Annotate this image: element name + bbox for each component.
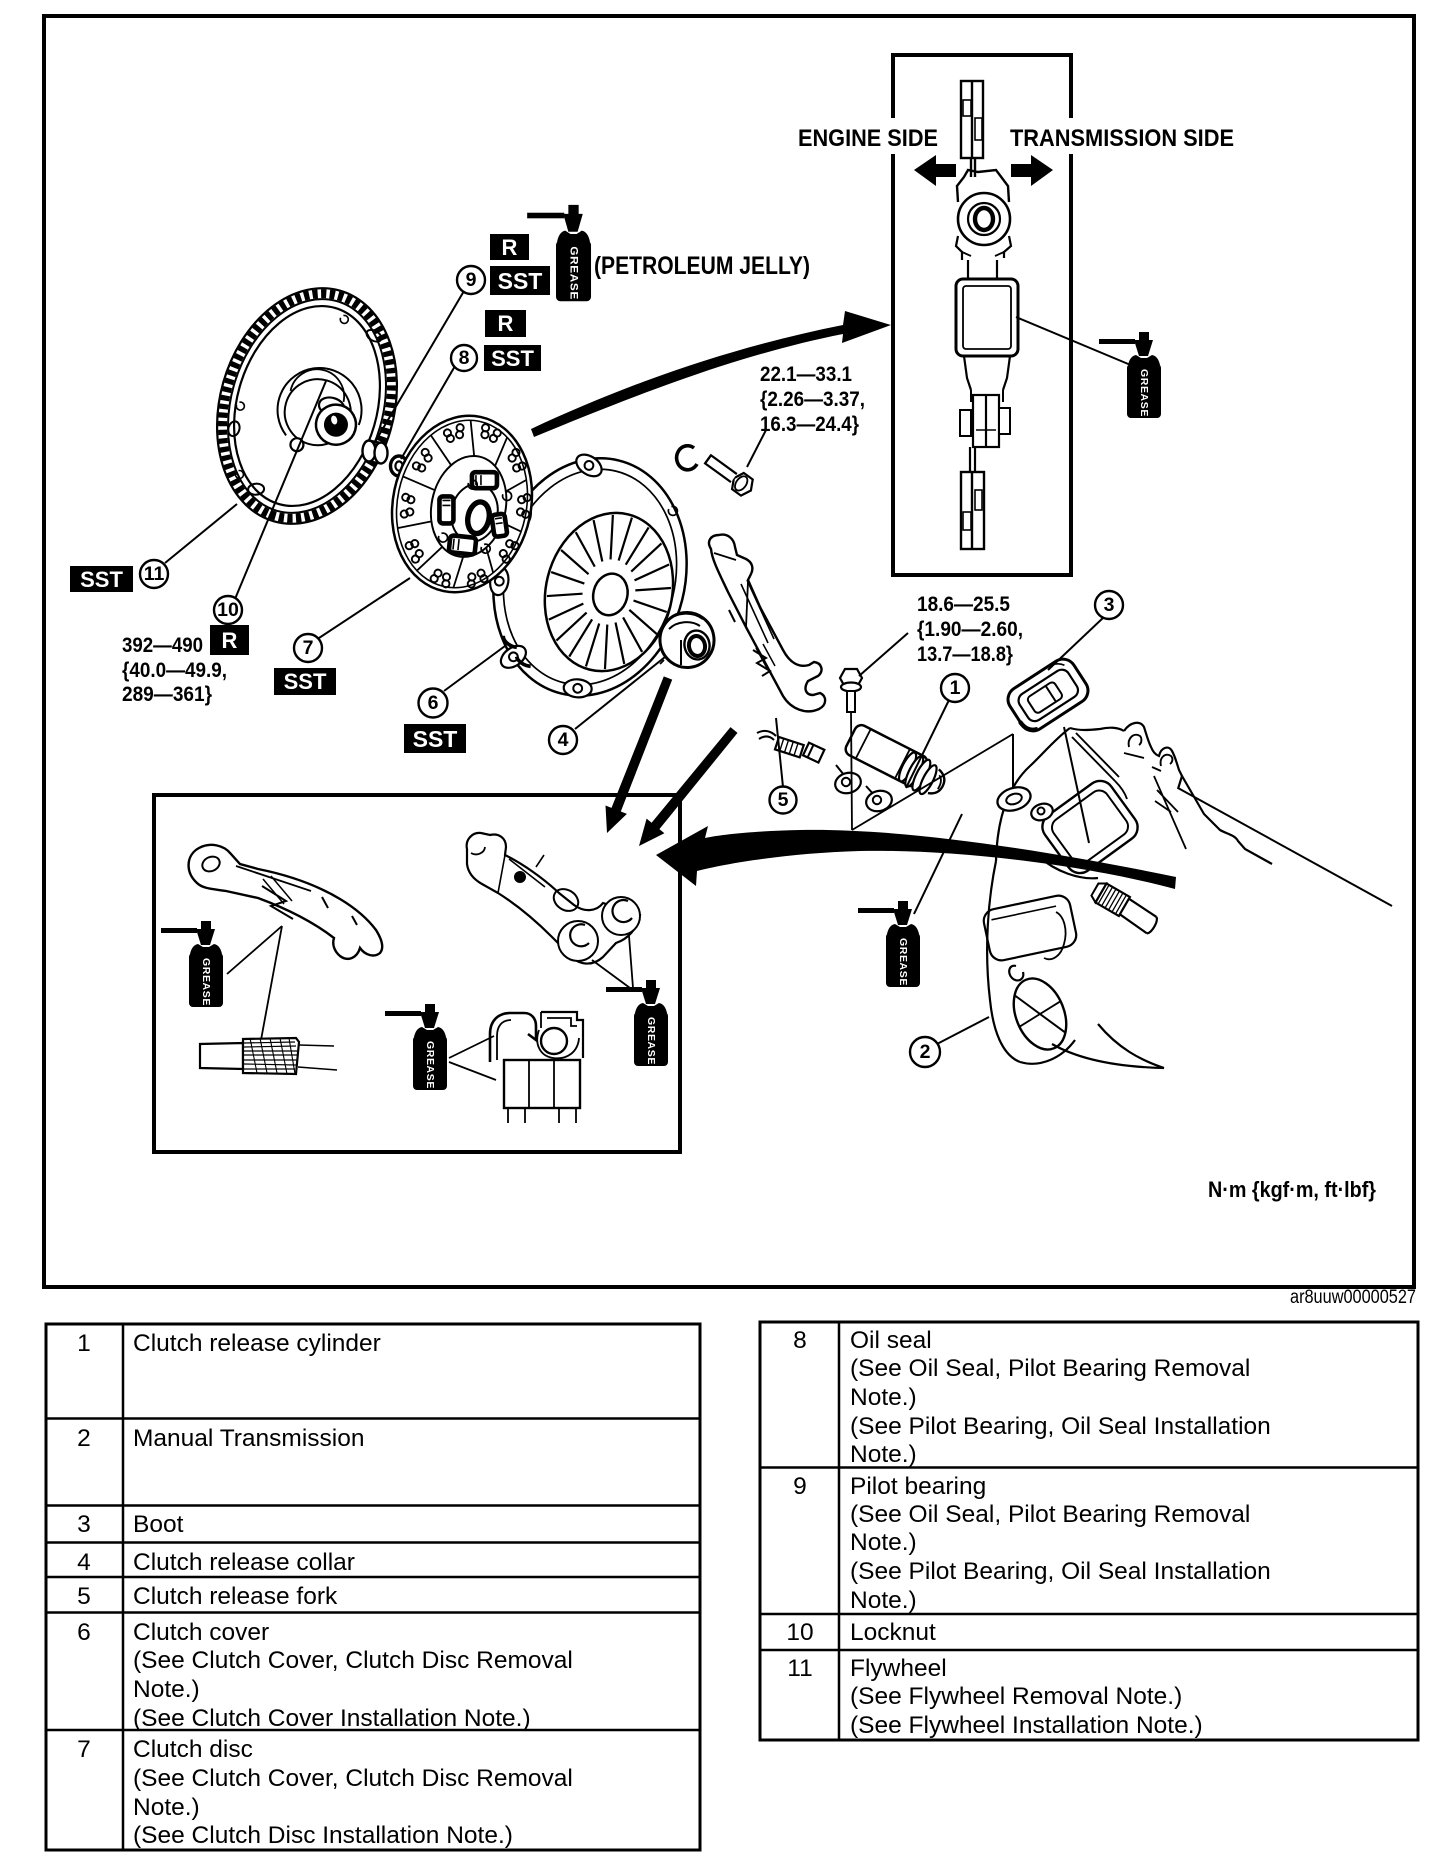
svg-text:289—361}: 289—361} — [122, 683, 212, 706]
svg-text:SST: SST — [413, 726, 458, 752]
svg-text:SST: SST — [284, 669, 327, 694]
svg-text:22.1—33.1: 22.1—33.1 — [760, 363, 852, 386]
svg-text:13.7—18.8}: 13.7—18.8} — [917, 643, 1013, 666]
svg-text:(See Pilot Bearing, Oil Seal I: (See Pilot Bearing, Oil Seal Installatio… — [850, 1413, 1271, 1440]
svg-text:Clutch release cylinder: Clutch release cylinder — [133, 1330, 381, 1357]
svg-text:2: 2 — [77, 1425, 91, 1452]
svg-text:(See Clutch Cover, Clutch Disc: (See Clutch Cover, Clutch Disc Removal — [133, 1765, 573, 1792]
svg-text:Clutch cover: Clutch cover — [133, 1619, 269, 1646]
svg-text:11: 11 — [144, 563, 165, 585]
svg-text:Note.): Note.) — [850, 1384, 917, 1411]
svg-text:Note.): Note.) — [850, 1441, 917, 1468]
svg-text:Note.): Note.) — [850, 1529, 917, 1556]
svg-text:Pilot bearing: Pilot bearing — [850, 1473, 986, 1500]
svg-text:16.3—24.4}: 16.3—24.4} — [760, 413, 859, 436]
svg-text:Clutch release collar: Clutch release collar — [133, 1549, 355, 1576]
svg-text:8: 8 — [793, 1327, 807, 1354]
svg-text:Boot: Boot — [133, 1511, 184, 1538]
svg-text:7: 7 — [77, 1736, 91, 1763]
svg-text:(See Pilot Bearing, Oil Seal: (See Pilot Bearing, Oil Seal Installatio… — [850, 1558, 1271, 1585]
svg-text:2: 2 — [920, 1041, 931, 1063]
svg-text:Locknut: Locknut — [850, 1619, 936, 1646]
svg-text:6: 6 — [77, 1619, 91, 1646]
svg-text:N·m {kgf·m, ft·lbf}: N·m {kgf·m, ft·lbf} — [1208, 1177, 1376, 1202]
svg-text:R: R — [502, 235, 518, 260]
svg-text:4: 4 — [77, 1549, 91, 1576]
svg-text:(See Oil Seal, Pilot Bearing R: (See Oil Seal, Pilot Bearing Removal — [850, 1501, 1250, 1528]
svg-text:8: 8 — [459, 347, 470, 369]
svg-text:Oil seal: Oil seal — [850, 1327, 932, 1354]
svg-text:TRANSMISSION SIDE: TRANSMISSION SIDE — [1010, 125, 1234, 152]
svg-text:(See Clutch Cover, Clutch Disc: (See Clutch Cover, Clutch Disc Removal — [133, 1647, 573, 1674]
svg-text:5: 5 — [778, 789, 789, 811]
svg-text:10: 10 — [786, 1619, 813, 1646]
svg-text:(See Clutch Cover Installation: (See Clutch Cover Installation Note.) — [133, 1705, 531, 1732]
svg-text:(PETROLEUM JELLY): (PETROLEUM JELLY) — [594, 252, 810, 280]
svg-text:{2.26—3.37,: {2.26—3.37, — [760, 388, 865, 411]
svg-text:18.6—25.5: 18.6—25.5 — [917, 593, 1010, 616]
svg-text:(See Flywheel Installation Not: (See Flywheel Installation Note.) — [850, 1712, 1203, 1739]
svg-text:Clutch disc: Clutch disc — [133, 1736, 253, 1763]
svg-text:Flywheel: Flywheel — [850, 1655, 947, 1682]
svg-text:SST: SST — [491, 346, 534, 371]
svg-text:5: 5 — [77, 1583, 91, 1610]
svg-text:11: 11 — [787, 1655, 812, 1682]
svg-text:Note.): Note.) — [133, 1794, 200, 1821]
svg-text:{1.90—2.60,: {1.90—2.60, — [917, 618, 1023, 641]
svg-text:6: 6 — [428, 692, 439, 714]
svg-text:SST: SST — [80, 567, 123, 592]
svg-text:4: 4 — [558, 729, 569, 751]
svg-text:392—490: 392—490 — [122, 634, 203, 657]
svg-text:R: R — [498, 311, 514, 336]
svg-text:9: 9 — [466, 269, 477, 291]
svg-text:Note.): Note.) — [133, 1676, 200, 1703]
svg-text:ENGINE SIDE: ENGINE SIDE — [798, 125, 938, 152]
svg-text:ar8uuw00000527: ar8uuw00000527 — [1290, 1287, 1416, 1308]
svg-text:Note.): Note.) — [850, 1587, 917, 1614]
svg-text:3: 3 — [1104, 594, 1115, 616]
svg-text:Manual Transmission: Manual Transmission — [133, 1425, 364, 1452]
svg-text:9: 9 — [793, 1473, 807, 1500]
svg-text:SST: SST — [498, 268, 543, 294]
svg-text:1: 1 — [77, 1330, 91, 1357]
svg-text:10: 10 — [217, 599, 239, 621]
svg-text:R: R — [222, 628, 238, 653]
svg-text:Clutch release fork: Clutch release fork — [133, 1583, 338, 1610]
svg-text:(See Oil Seal, Pilot Bearing R: (See Oil Seal, Pilot Bearing Removal — [850, 1355, 1250, 1382]
svg-text:7: 7 — [303, 637, 314, 659]
svg-text:(See Flywheel Removal Note.): (See Flywheel Removal Note.) — [850, 1683, 1182, 1710]
svg-text:(See Clutch Disc Installation: (See Clutch Disc Installation Note.) — [133, 1822, 513, 1849]
svg-text:1: 1 — [950, 677, 961, 699]
svg-text:3: 3 — [77, 1511, 91, 1538]
svg-text:{40.0—49.9,: {40.0—49.9, — [122, 659, 227, 682]
